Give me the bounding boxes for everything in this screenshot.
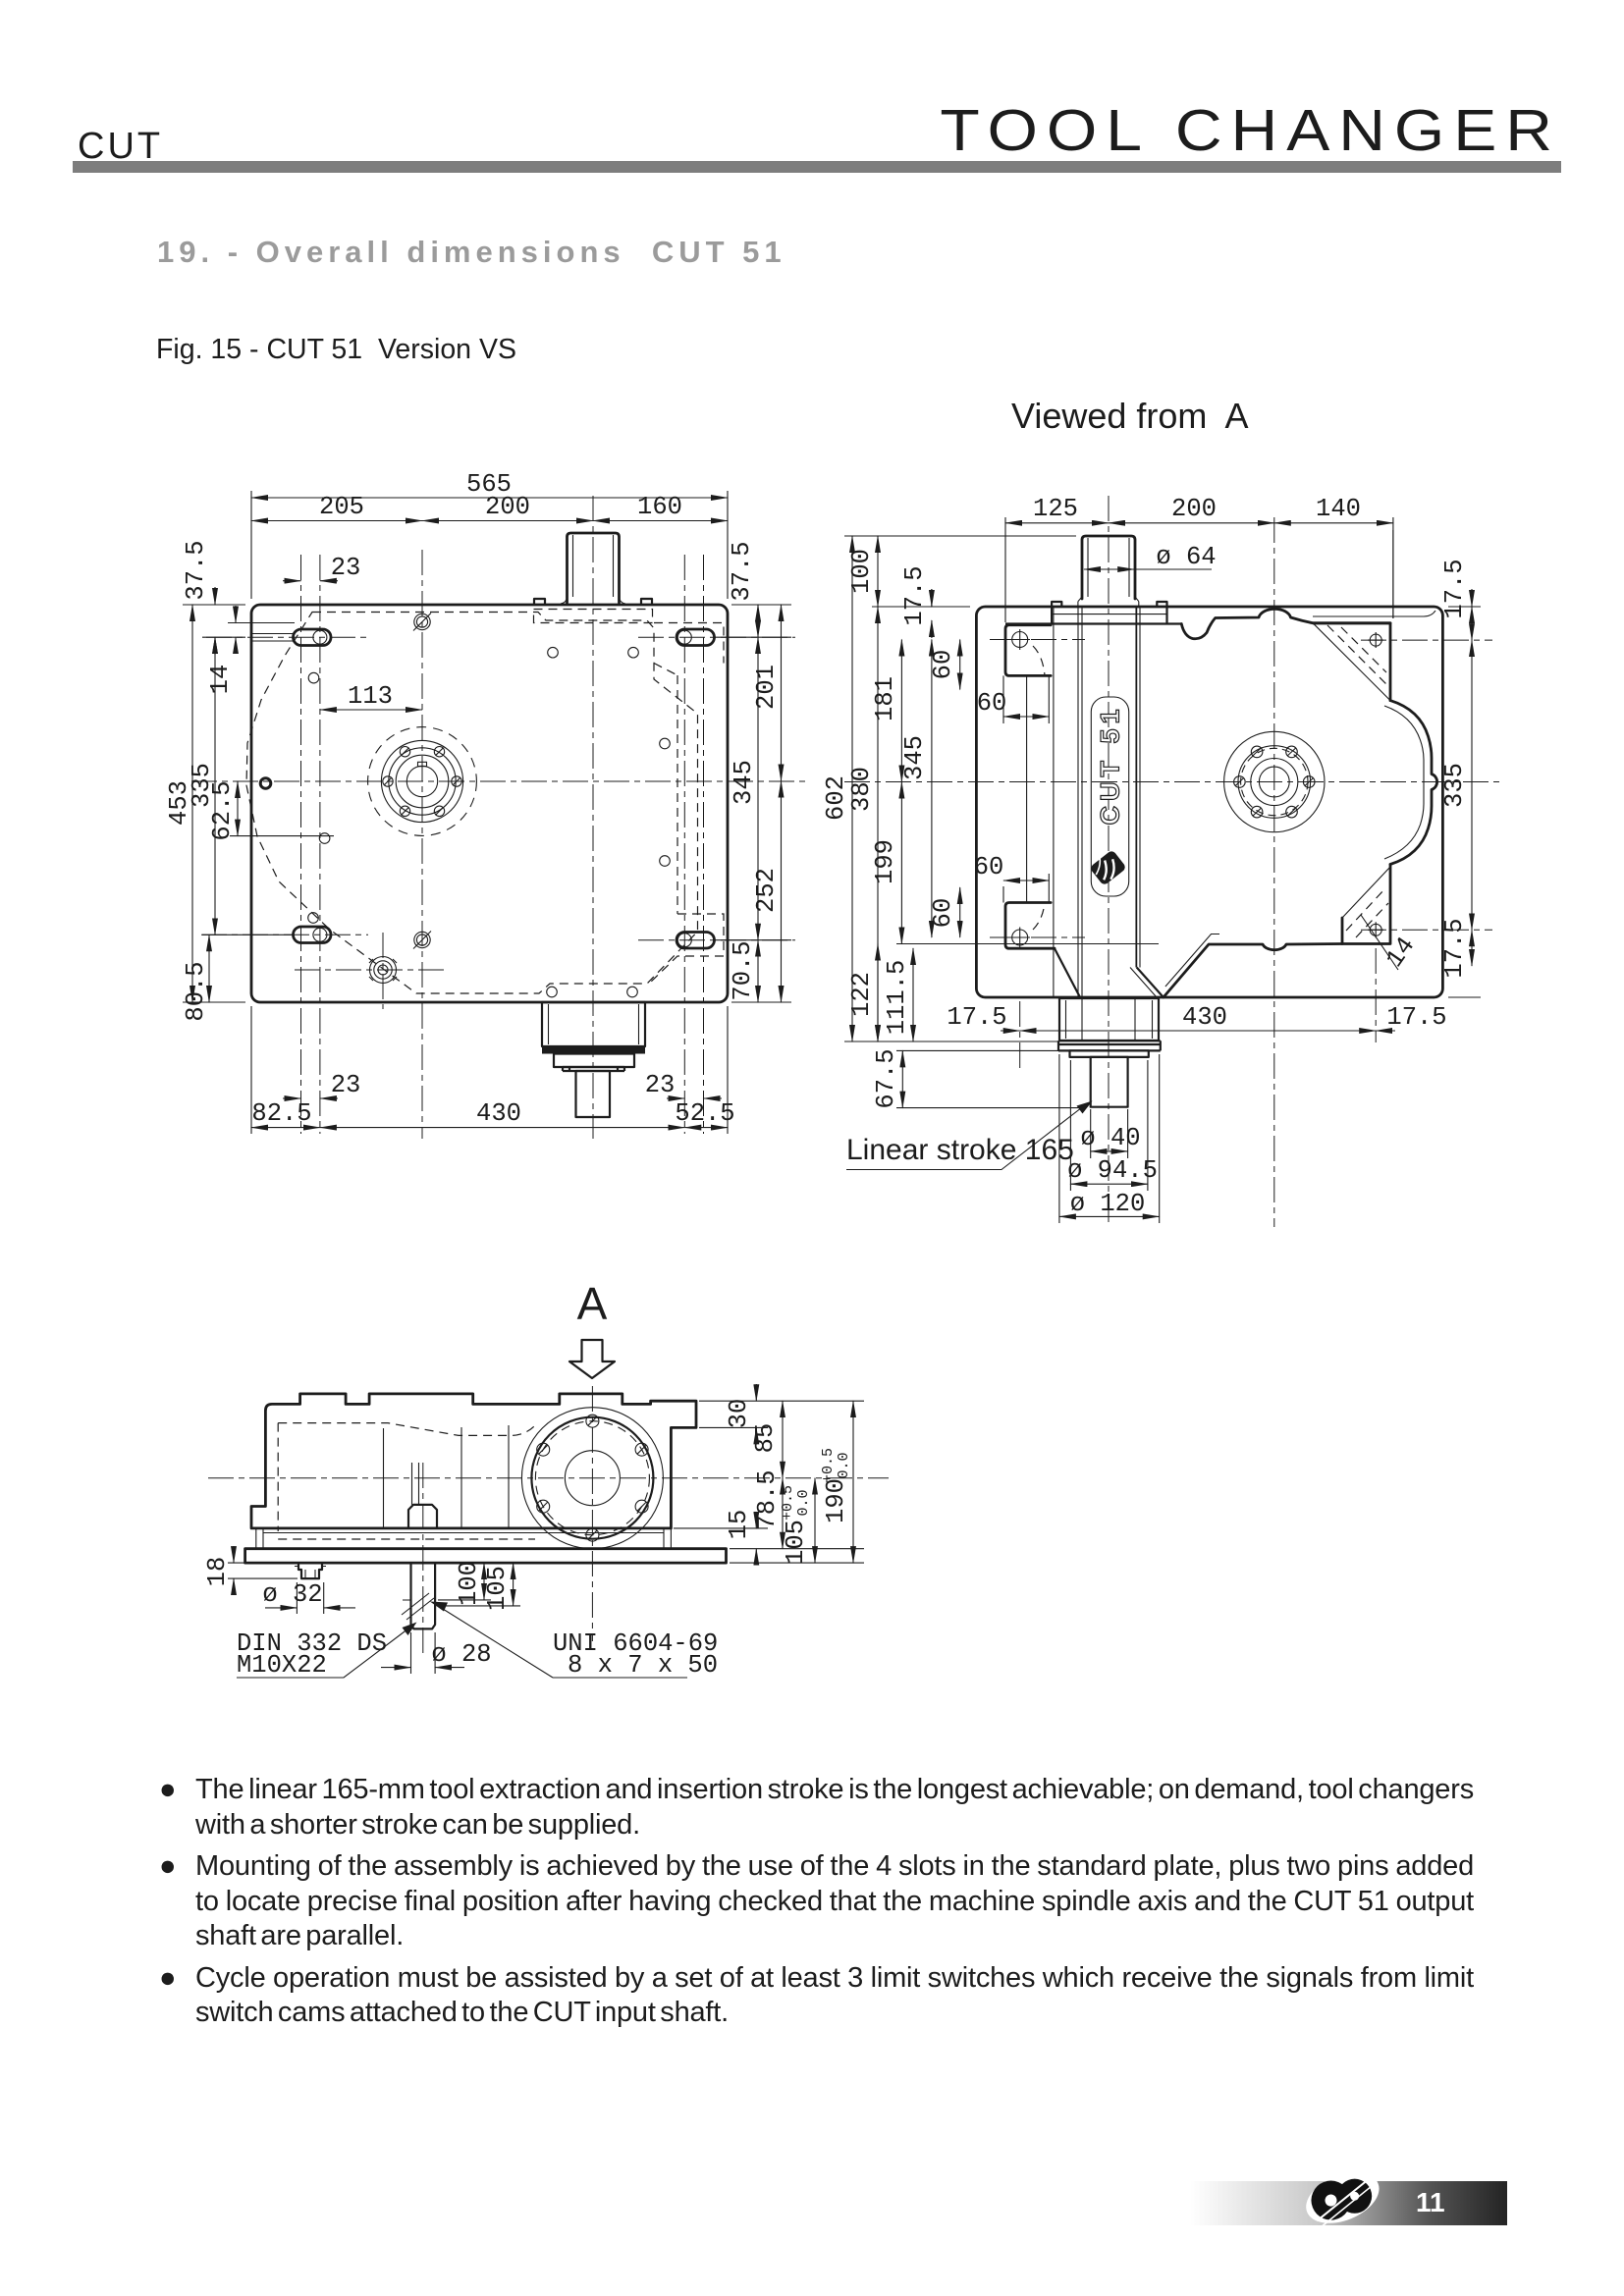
- svg-text:18: 18: [203, 1557, 232, 1587]
- svg-text:122: 122: [847, 972, 876, 1017]
- svg-text:17.5: 17.5: [1440, 918, 1469, 978]
- svg-text:14: 14: [206, 665, 235, 695]
- svg-text:ø 32: ø 32: [262, 1580, 322, 1609]
- svg-text:252: 252: [752, 868, 781, 913]
- svg-text:100: 100: [455, 1561, 483, 1606]
- svg-text:67.5: 67.5: [872, 1048, 900, 1108]
- svg-text:205: 205: [319, 493, 364, 521]
- svg-text:M10X22: M10X22: [237, 1651, 327, 1680]
- svg-text:ø 64: ø 64: [1156, 543, 1216, 571]
- svg-text:CUT 51: CUT 51: [1096, 704, 1125, 825]
- svg-text:23: 23: [645, 1071, 676, 1099]
- svg-text:113: 113: [348, 682, 393, 711]
- svg-text:60: 60: [977, 689, 1007, 718]
- svg-text:380: 380: [847, 767, 876, 812]
- svg-text:15: 15: [725, 1510, 753, 1540]
- svg-text:17.5: 17.5: [900, 565, 929, 625]
- svg-text:82.5: 82.5: [251, 1099, 311, 1128]
- svg-text:140: 140: [1316, 495, 1361, 523]
- svg-text:602: 602: [822, 775, 850, 821]
- svg-text:78.5: 78.5: [753, 1469, 782, 1529]
- svg-text:111.5: 111.5: [883, 960, 911, 1036]
- svg-text:17.5: 17.5: [947, 1003, 1006, 1032]
- svg-text:17.5: 17.5: [1386, 1003, 1446, 1032]
- svg-text:+0.5: +0.5: [820, 1448, 837, 1483]
- svg-text:200: 200: [485, 493, 530, 521]
- svg-text:ø 120: ø 120: [1070, 1190, 1146, 1218]
- svg-text:ø 28: ø 28: [431, 1640, 491, 1669]
- svg-text:190: 190: [822, 1478, 850, 1523]
- svg-text:62.5: 62.5: [208, 780, 237, 840]
- svg-text:37.5: 37.5: [182, 540, 210, 600]
- svg-text:60: 60: [929, 898, 957, 929]
- svg-text:105: 105: [782, 1520, 810, 1565]
- svg-text:+0.5: +0.5: [780, 1485, 796, 1521]
- svg-text:335: 335: [1440, 763, 1469, 808]
- svg-text:70.5: 70.5: [729, 940, 757, 1000]
- svg-text:ø 94.5: ø 94.5: [1067, 1156, 1158, 1185]
- svg-text:60: 60: [929, 650, 957, 680]
- svg-text:A: A: [577, 1278, 608, 1329]
- svg-text:ø 40: ø 40: [1080, 1124, 1140, 1152]
- svg-text:0.0: 0.0: [836, 1452, 852, 1478]
- svg-text:85: 85: [751, 1423, 780, 1454]
- svg-text:200: 200: [1171, 495, 1217, 523]
- svg-text:181: 181: [871, 676, 899, 721]
- svg-text:80.5: 80.5: [182, 961, 210, 1021]
- svg-text:30: 30: [725, 1399, 753, 1429]
- svg-text:125: 125: [1033, 495, 1078, 523]
- svg-text:37.5: 37.5: [728, 541, 756, 601]
- svg-text:23: 23: [331, 554, 361, 582]
- svg-text:52.5: 52.5: [675, 1099, 734, 1128]
- svg-text:430: 430: [1182, 1003, 1227, 1032]
- svg-text:430: 430: [476, 1099, 521, 1128]
- svg-text:199: 199: [871, 839, 899, 884]
- svg-text:23: 23: [331, 1071, 361, 1099]
- svg-text:345: 345: [900, 735, 929, 780]
- svg-text:345: 345: [730, 760, 758, 805]
- svg-text:14: 14: [1380, 932, 1421, 973]
- svg-text:105: 105: [483, 1566, 512, 1611]
- svg-text:100: 100: [847, 549, 876, 594]
- svg-text:8 x 7 x 50: 8 x 7 x 50: [568, 1651, 718, 1680]
- svg-text:Linear stroke 165: Linear stroke 165: [846, 1134, 1074, 1166]
- svg-text:60: 60: [974, 853, 1004, 881]
- svg-text:160: 160: [637, 493, 682, 521]
- svg-text:17.5: 17.5: [1440, 559, 1469, 618]
- svg-text:0.0: 0.0: [795, 1489, 812, 1516]
- svg-text:201: 201: [752, 665, 781, 710]
